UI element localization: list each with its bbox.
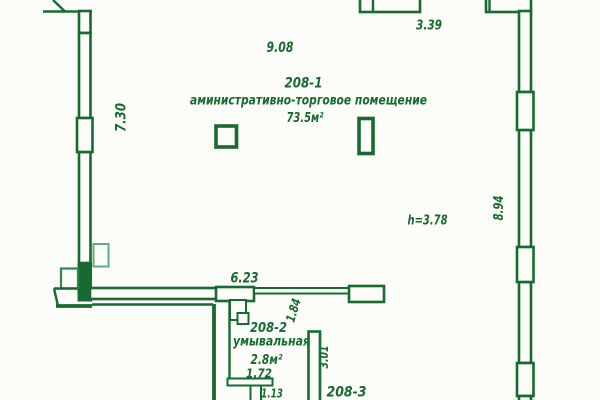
dim-top-right-window: 3.39 [416,19,442,34]
bottom-wall-segment-thin [254,288,349,294]
dim-wash-door: 1.13 [261,386,283,400]
dim-wash-width: 1.72 [246,366,272,381]
wall-break-line [53,0,65,12]
door-threshold [216,287,254,301]
dim-door-offset: 1.84 [283,297,304,324]
room-main-name: аминистративно-торговое помещение [190,94,427,109]
right-wall-window [517,247,534,282]
bottom-wall-segment [90,288,217,299]
room-wash-name: умывальная [233,335,310,350]
door-jamb-notch [238,313,249,324]
right-wall-window [517,92,534,130]
fixture-outline-outside [61,269,78,289]
left-wall [54,11,109,306]
washroom-door-jamb [251,386,262,400]
entry-step-side [54,289,58,307]
floor-plan: 9.08 3.39 7.30 8.94 208-1 аминистративно… [0,0,600,400]
right-wall-segment [519,130,531,247]
dim-left-span: 7.30 [114,103,130,132]
right-wall-window [517,363,534,396]
room-3-number: 208-3 [327,385,367,400]
left-wall-segment [79,33,91,118]
left-wall-window [77,118,93,152]
right-wall-sill [519,396,531,400]
column-tall [359,119,373,154]
dim-top-span: 9.08 [267,40,294,56]
right-wall-segment [519,11,531,92]
right-wall-segment [519,282,531,363]
room-main-height-note: h=3.78 [408,214,448,229]
fixture-outline-inside [94,244,109,267]
column-square [216,126,237,147]
bottom-wall-step [349,286,384,302]
dim-wash-depth: 3.01 [316,346,331,369]
right-wall [517,11,534,400]
left-wall-segment [79,11,91,33]
top-wall-window [360,0,420,12]
floor-plan-canvas: 9.08 3.39 7.30 8.94 208-1 аминистративно… [0,0,600,400]
dim-right-span: 8.94 [492,196,507,221]
room-main-area: 73.5м² [287,111,324,126]
left-wall-segment [79,152,91,263]
dim-bottom-span: 6.23 [231,271,259,287]
top-wall [43,0,531,12]
room-main-number: 208-1 [285,76,323,92]
